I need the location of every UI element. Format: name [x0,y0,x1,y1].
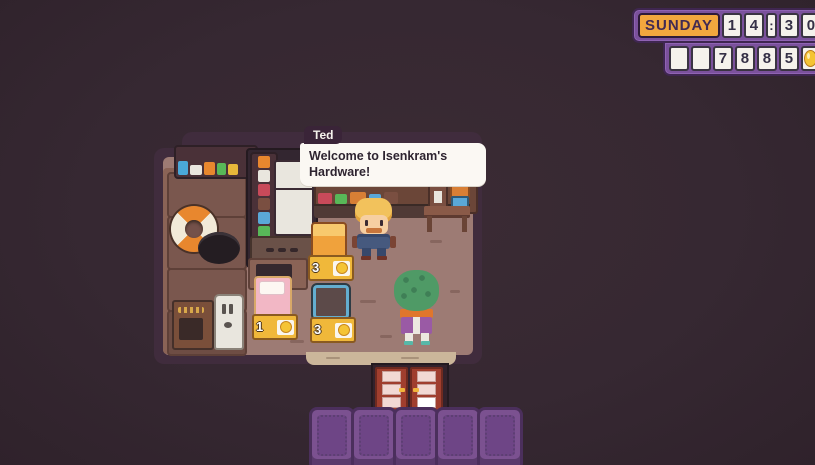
robot-slot [229,304,233,314]
money-digit [691,46,711,71]
drawer-handle [290,248,298,252]
floor-mark [360,300,376,303]
shelf-item-can [228,164,238,175]
coin-icon [336,262,348,274]
clock-digit: 1 [722,13,742,38]
price-value: 3 [312,261,319,275]
dialogue-line: Welcome to Isenkram's [309,148,477,164]
clock-digit: 0 [801,13,815,38]
stock-item [258,212,270,224]
hud: SUNDAY 1 4 : 3 0 7 8 8 5 [632,8,815,76]
shelf-item-bottle [178,161,188,175]
drawer-handle [278,248,286,252]
floor-mark [290,340,304,343]
door-handle [399,388,405,392]
sale-item-screen[interactable] [313,285,349,319]
coin-icon [280,321,292,333]
walkway-tile [309,407,355,465]
day-label: SUNDAY [638,13,720,38]
player-hair [394,270,439,311]
door-pane [417,371,436,382]
door-pane [417,384,436,395]
amp-grill-zigzag [178,307,204,313]
hud-clock-row: SUNDAY 1 4 : 3 0 [632,8,815,43]
bed-pillow [259,281,285,295]
clock-digit: 4 [744,13,764,38]
stock-item [258,184,270,196]
price-tag-furnace: 3 [308,255,354,281]
walkway-tile [477,407,523,465]
walkway-tile [351,407,397,465]
ted-mustache [366,228,382,233]
porch-mark [326,357,340,359]
walkway-tile [435,407,481,465]
money-digit: 8 [735,46,755,71]
coin-icon [804,50,815,67]
player-jacket [401,317,432,334]
amp-speaker [179,318,203,340]
dialogue-bubble[interactable]: Welcome to Isenkram's Hardware! [300,143,486,186]
stock-item [258,156,270,168]
hud-money-row: 7 8 8 5 [663,41,815,76]
shelf-item-box [190,165,202,175]
tile-inner [317,415,347,456]
npc-ted[interactable] [352,198,396,260]
cauldron-pot [198,232,240,264]
floor-mark [430,240,442,243]
price-tag-screen: 3 [310,317,356,343]
fridge-door-split [276,188,312,190]
ted-shoe [377,256,387,260]
ted-eye [365,220,368,226]
price-sign [277,320,294,335]
coin-icon [338,324,350,336]
money-coin-cell [801,46,815,71]
player-shoe [404,341,413,345]
walkway-tile [393,407,439,465]
picture [434,191,442,203]
shelf-item [318,193,332,204]
floor-mark [380,335,392,338]
price-tag-bed: 1 [252,314,298,340]
player-shoe [421,341,430,345]
price-value: 1 [256,320,263,334]
ted-eye [380,220,383,226]
porch-mark [401,357,419,359]
player-character[interactable] [393,270,441,346]
money-digit: 7 [713,46,733,71]
shelf-item [335,194,347,204]
ted-face [360,215,388,234]
price-sign [333,261,350,276]
clock-colon: : [766,13,777,38]
price-value: 3 [314,323,321,337]
floor-mark [450,290,460,293]
game-screen: 3 1 3 [0,0,815,465]
amplifier [172,300,214,350]
dialogue-line: Hardware! [309,164,477,180]
money-digit: 8 [757,46,777,71]
stock-item [258,170,270,182]
life-preserver-hole [185,220,203,238]
door-handle [413,388,419,392]
stock-item [258,198,270,210]
ted-arm [390,236,396,248]
player-shirt [413,317,420,334]
speaker-name-tag: Ted [304,126,342,144]
ted-shoe [361,256,371,260]
tile-inner [443,415,473,456]
tile-inner [401,415,431,456]
drawer-handle [266,248,274,252]
money-digit [669,46,689,71]
dispenser-robot [214,294,244,350]
robot-eye [224,322,232,328]
side-desk [424,184,470,234]
tile-inner [485,415,515,456]
desk-leg [427,216,432,232]
robot-slot [222,304,226,314]
price-sign [335,323,352,338]
money-digit: 5 [779,46,799,71]
clock-digit: 3 [779,13,799,38]
tile-inner [359,415,389,456]
door-pane [382,371,401,382]
desk-leg [462,216,467,232]
shelf-item-crate [204,162,215,175]
shelf-item-jar [217,163,226,175]
ted-overalls [357,234,390,249]
